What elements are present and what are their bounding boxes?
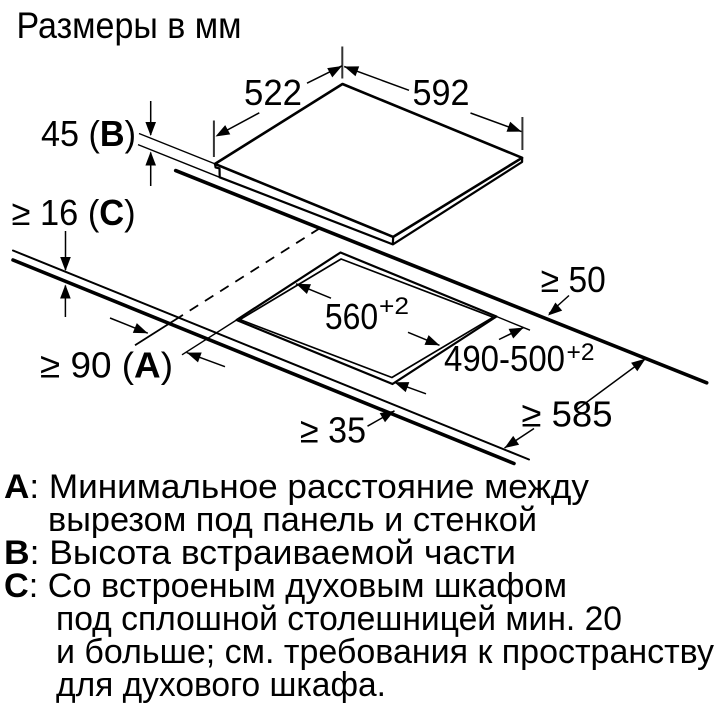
svg-text:≥ 50: ≥ 50	[541, 259, 606, 300]
svg-text:522: 522	[244, 72, 302, 113]
svg-text:≥ 585: ≥ 585	[522, 394, 613, 435]
svg-text:560: 560	[325, 296, 378, 337]
svg-text:+2: +2	[567, 339, 595, 366]
svg-text:Размеры в мм: Размеры в мм	[17, 5, 242, 46]
svg-text:≥ 90 (A): ≥ 90 (A)	[40, 345, 173, 386]
svg-text:592: 592	[413, 72, 470, 113]
svg-text:≥ 16 (C): ≥ 16 (C)	[12, 192, 136, 233]
svg-text:для духового шкафа.: для духового шкафа.	[56, 666, 386, 704]
svg-text:+2: +2	[379, 293, 409, 320]
svg-text:45 (B): 45 (B)	[41, 113, 136, 154]
svg-text:≥ 35: ≥ 35	[300, 410, 366, 451]
svg-text:490-500: 490-500	[444, 338, 565, 379]
